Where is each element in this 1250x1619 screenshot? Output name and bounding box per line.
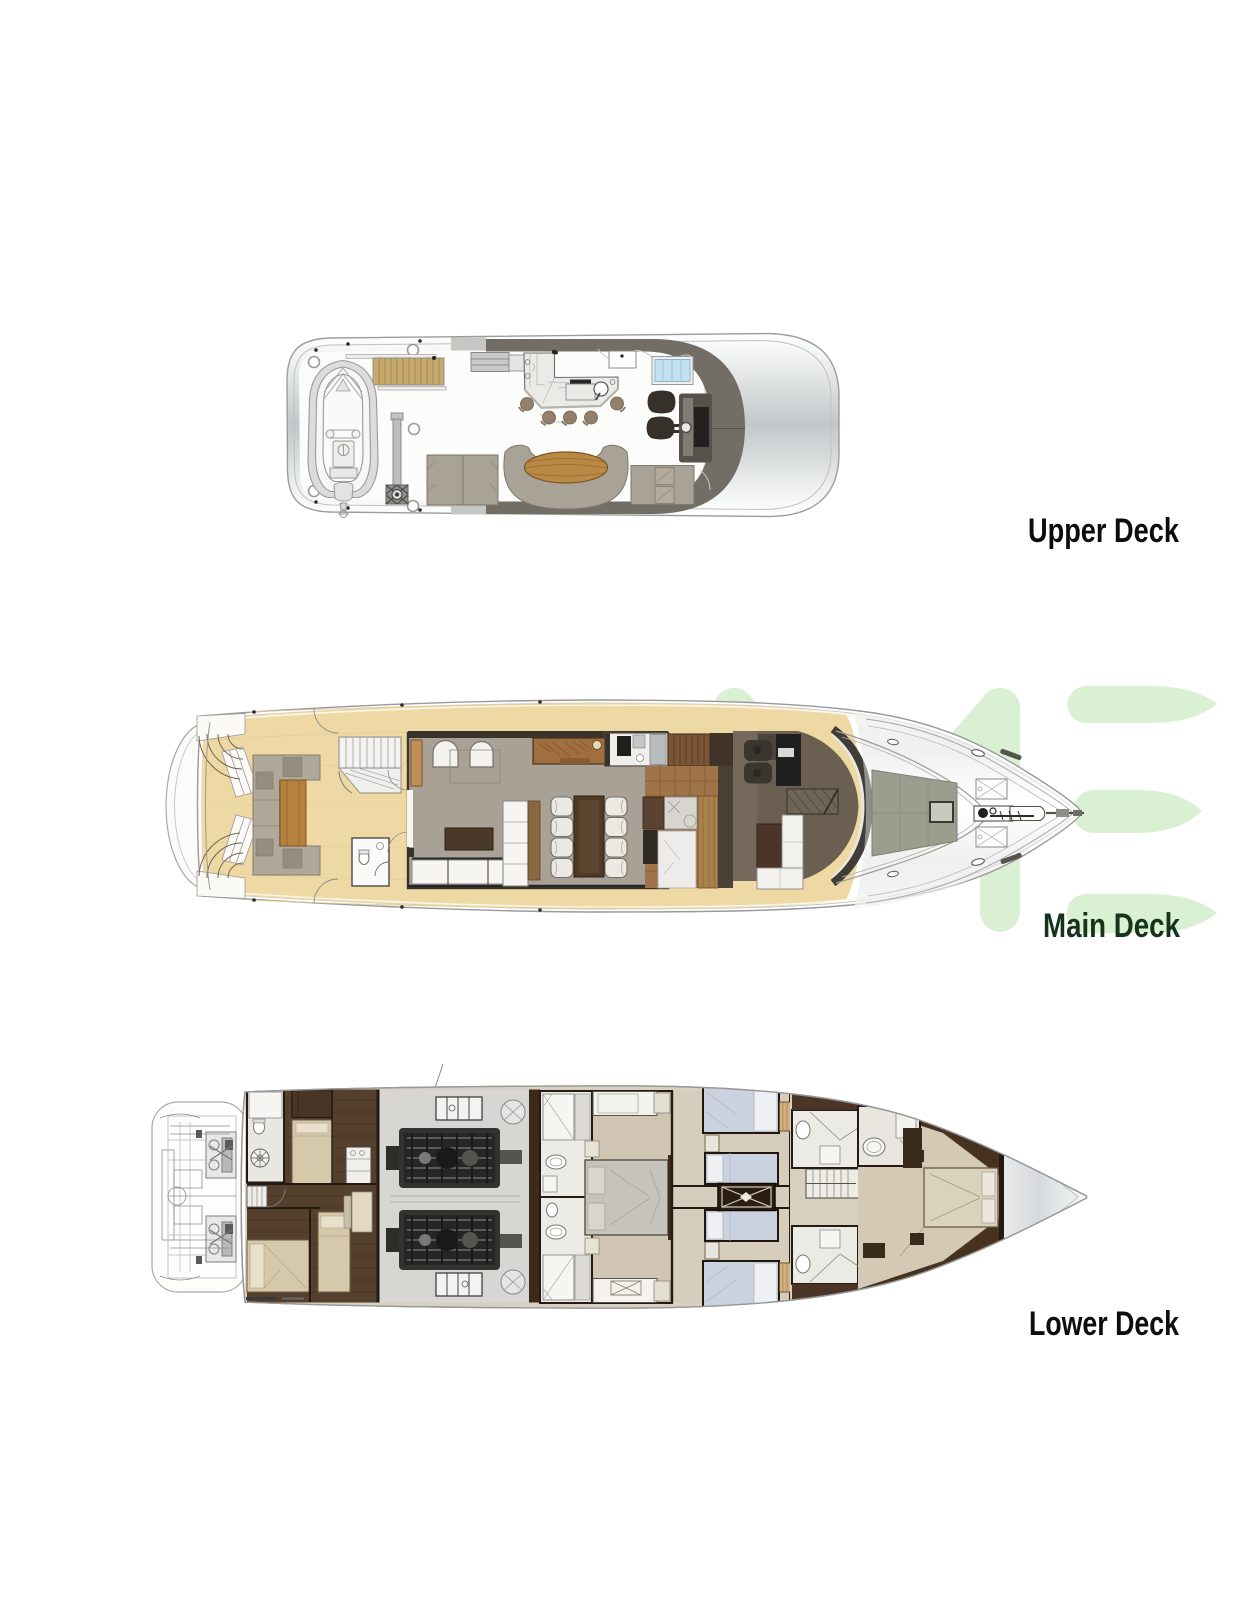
svg-text:Upper Deck: Upper Deck bbox=[1028, 512, 1180, 550]
svg-text:Lower Deck: Lower Deck bbox=[1029, 1305, 1180, 1343]
svg-text:Main Deck: Main Deck bbox=[1043, 907, 1181, 945]
